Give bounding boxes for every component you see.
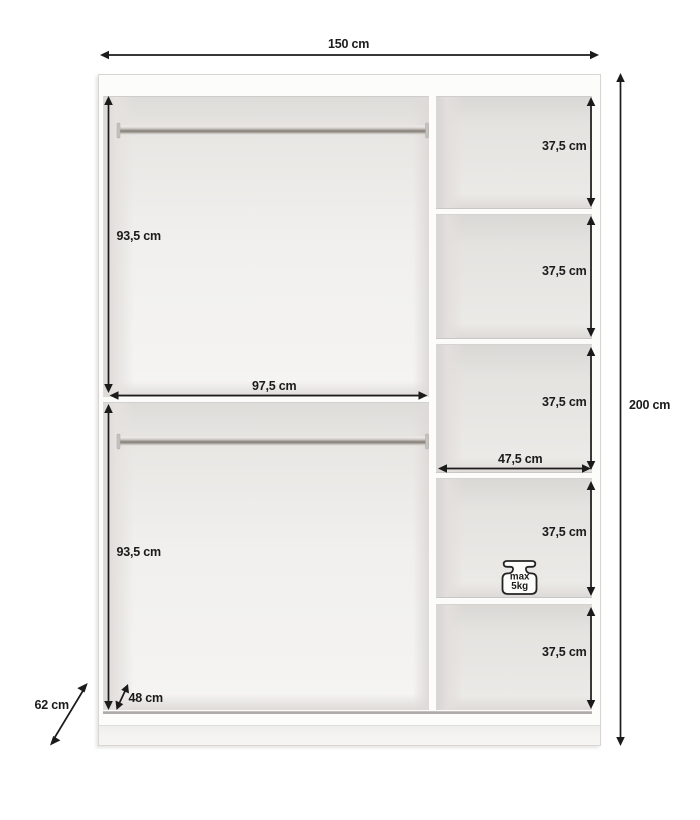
svg-text:5kg: 5kg xyxy=(511,581,528,592)
